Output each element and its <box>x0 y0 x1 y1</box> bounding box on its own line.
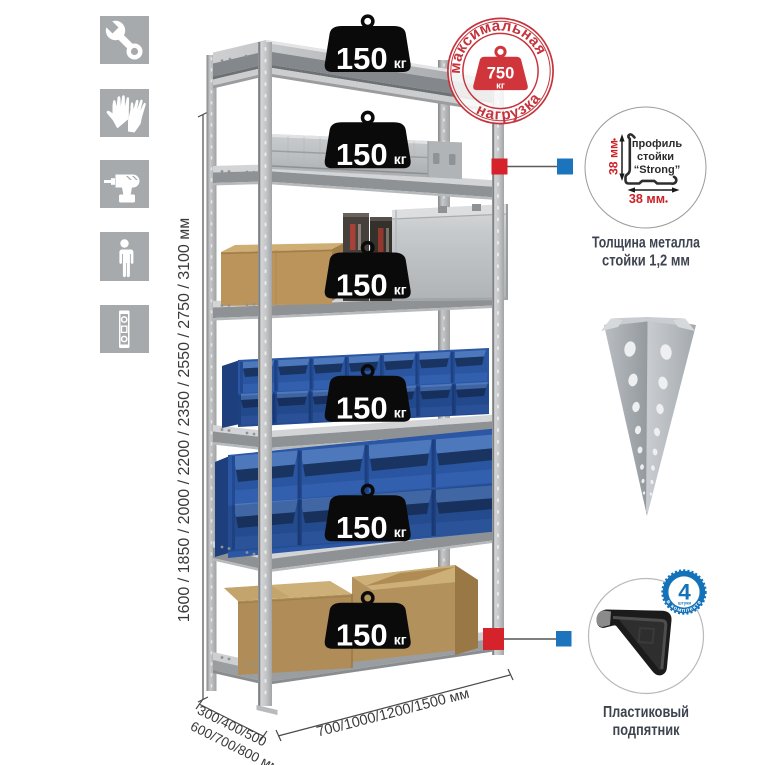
svg-text:38 мм: 38 мм <box>629 192 665 206</box>
svg-text:Пластиковый: Пластиковый <box>603 704 689 721</box>
svg-text:профиль: профиль <box>632 138 682 150</box>
svg-text:стойки: стойки <box>637 151 674 163</box>
svg-text:стойки 1,2 мм: стойки 1,2 мм <box>602 253 690 270</box>
svg-text:38 мм: 38 мм <box>607 140 621 175</box>
svg-text:1600 / 1850 / 2000 / 2200 / 23: 1600 / 1850 / 2000 / 2200 / 2350 / 2550 … <box>176 218 193 623</box>
svg-text:подпятник: подпятник <box>613 722 680 739</box>
svg-text:Толщина металла: Толщина металла <box>592 235 700 252</box>
svg-text:кг: кг <box>496 81 505 92</box>
svg-text:штуки: штуки <box>678 601 691 606</box>
svg-text:“Strong”: “Strong” <box>634 164 680 176</box>
